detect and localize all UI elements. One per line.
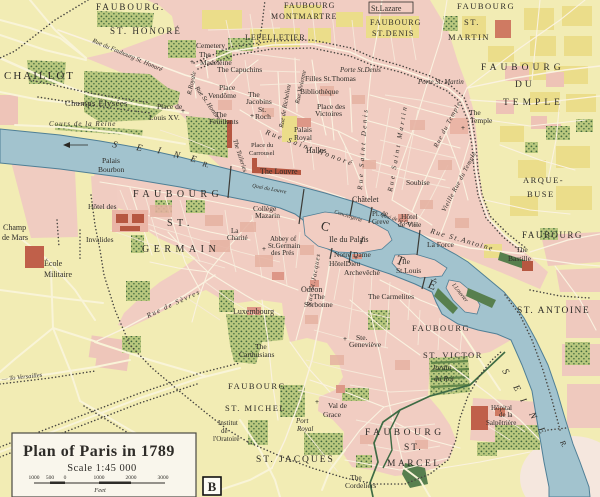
svg-text:de Mars: de Mars: [2, 233, 28, 242]
svg-text:The Capuchins: The Capuchins: [217, 65, 262, 74]
svg-text:FAUBOURG: FAUBOURG: [522, 230, 583, 240]
svg-text:+: +: [315, 398, 319, 406]
svg-text:Salpêtrière: Salpêtrière: [486, 419, 516, 427]
svg-text:The Carmelites: The Carmelites: [368, 292, 414, 301]
svg-text:500: 500: [46, 475, 55, 481]
svg-text:l'Oratoire: l'Oratoire: [213, 435, 240, 443]
svg-text:ST. ANTOINE: ST. ANTOINE: [517, 306, 590, 316]
svg-text:Place de: Place de: [157, 102, 183, 111]
svg-text:+: +: [461, 124, 465, 132]
svg-text:3000: 3000: [158, 475, 169, 481]
svg-text:Geneviève: Geneviève: [349, 340, 382, 349]
svg-text:ST. JACQUES: ST. JACQUES: [256, 455, 335, 465]
svg-text:Hôtel des: Hôtel des: [88, 202, 117, 211]
svg-text:ARQUE-: ARQUE-: [523, 175, 564, 185]
svg-text:ST. VICTOR: ST. VICTOR: [423, 350, 483, 360]
svg-text:Militaire: Militaire: [44, 270, 72, 279]
svg-text:Charité: Charité: [227, 234, 248, 242]
svg-text:MARCEL: MARCEL: [387, 459, 442, 469]
svg-text:+: +: [262, 245, 266, 253]
svg-text:HôtelDieu: HôtelDieu: [329, 259, 360, 268]
svg-text:FAUBOURG: FAUBOURG: [412, 323, 470, 333]
svg-text:Scale 1:45 000: Scale 1:45 000: [67, 463, 136, 474]
svg-text:FAUBOURG: FAUBOURG: [481, 63, 565, 73]
svg-text:FAUBOURG.: FAUBOURG.: [96, 2, 165, 12]
svg-text:1000: 1000: [29, 475, 40, 481]
svg-text:+: +: [190, 58, 194, 66]
svg-text:Palais: Palais: [102, 156, 120, 165]
svg-text:LEPELLETIER: LEPELLETIER: [245, 32, 305, 42]
svg-text:Cours de la Reine: Cours de la Reine: [49, 120, 116, 128]
svg-text:DU: DU: [515, 80, 535, 90]
svg-text:Châtelet: Châtelet: [352, 195, 379, 204]
svg-text:Feuillants: Feuillants: [209, 117, 239, 126]
svg-text:FAUBOURG: FAUBOURG: [284, 1, 335, 10]
svg-text:ST.: ST.: [464, 17, 480, 27]
svg-text:Place du: Place du: [251, 142, 274, 149]
svg-text:Louis XV.: Louis XV.: [149, 113, 180, 122]
svg-text:ST.: ST.: [167, 218, 194, 229]
svg-text:Vendôme: Vendôme: [208, 91, 237, 100]
svg-text:de la: de la: [499, 411, 513, 419]
svg-text:TEMPLE: TEMPLE: [503, 98, 564, 108]
svg-text:Victoires: Victoires: [315, 109, 342, 118]
svg-text:ST. MICHEL: ST. MICHEL: [225, 403, 286, 413]
svg-text:The Louvre: The Louvre: [260, 167, 298, 176]
svg-text:Bastille: Bastille: [508, 254, 532, 263]
svg-text:Soubise: Soubise: [406, 178, 430, 187]
svg-text:ST.: ST.: [404, 443, 423, 453]
svg-text:Grace: Grace: [323, 410, 342, 419]
svg-text:2000: 2000: [126, 475, 137, 481]
svg-text:+: +: [343, 335, 347, 343]
svg-text:Roch: Roch: [255, 112, 271, 121]
svg-text:Jardin: Jardin: [432, 363, 452, 372]
svg-text:Mazarin: Mazarin: [255, 211, 280, 220]
svg-text:Invalides: Invalides: [86, 235, 114, 244]
svg-text:B: B: [208, 479, 217, 494]
svg-text:Porte St.Denis: Porte St.Denis: [339, 66, 381, 74]
svg-text:MONTMARTRE: MONTMARTRE: [271, 12, 337, 21]
svg-text:Notre Dame: Notre Dame: [334, 250, 372, 259]
svg-text:FAUBOURG: FAUBOURG: [370, 18, 421, 27]
svg-text:Carthusians: Carthusians: [239, 350, 274, 359]
svg-text:FAUBOURG: FAUBOURG: [228, 381, 286, 391]
svg-text:Cemetery: Cemetery: [196, 41, 225, 50]
svg-text:de: de: [221, 427, 228, 435]
svg-text:MARTIN: MARTIN: [448, 32, 490, 42]
svg-text:Bibliothèque: Bibliothèque: [300, 87, 339, 96]
svg-text:Institut: Institut: [218, 419, 238, 427]
svg-text:GERMAIN: GERMAIN: [142, 244, 220, 255]
svg-text:CHAILLOT: CHAILLOT: [4, 70, 75, 82]
svg-text:Bourbon: Bourbon: [98, 165, 125, 174]
svg-text:Feet: Feet: [93, 487, 106, 494]
svg-text:Plan of Paris in 1789: Plan of Paris in 1789: [23, 443, 175, 460]
svg-text:1000: 1000: [94, 475, 105, 481]
svg-text:0: 0: [64, 475, 67, 481]
svg-text:+: +: [250, 112, 254, 120]
svg-text:ST.DENIS: ST.DENIS: [372, 29, 414, 38]
svg-text:des Prés: des Prés: [271, 249, 294, 257]
svg-text:du Roi: du Roi: [434, 374, 454, 383]
svg-text:Cordeliers: Cordeliers: [345, 481, 376, 490]
svg-text:Champs Élysées: Champs Élysées: [65, 98, 128, 108]
svg-text:Champ: Champ: [3, 223, 26, 232]
svg-text:École: École: [44, 258, 63, 268]
svg-text:Val de: Val de: [328, 401, 348, 410]
svg-text:Royal: Royal: [296, 425, 313, 433]
svg-text:Temple: Temple: [470, 116, 493, 125]
svg-text:Archevêché: Archevêché: [344, 268, 380, 277]
svg-text:Carrousel: Carrousel: [249, 150, 274, 157]
svg-text:La Force: La Force: [427, 240, 455, 249]
svg-text:ST. HONORÉ: ST. HONORÉ: [110, 26, 182, 36]
svg-text:Port: Port: [295, 417, 310, 425]
svg-text:FAUBOURG: FAUBOURG: [457, 1, 515, 11]
svg-text:FAUBOURG: FAUBOURG: [365, 428, 445, 438]
svg-text:Porte St. Martin: Porte St. Martin: [417, 78, 464, 86]
svg-text:Luxembourg: Luxembourg: [233, 307, 274, 316]
svg-text:The: The: [516, 245, 528, 254]
svg-text:BUSE: BUSE: [527, 189, 555, 199]
svg-text:St.Lazare: St.Lazare: [371, 4, 402, 13]
svg-text:Filles St.Thomas: Filles St.Thomas: [305, 74, 356, 83]
svg-text:FAUBOURG: FAUBOURG: [133, 189, 223, 200]
